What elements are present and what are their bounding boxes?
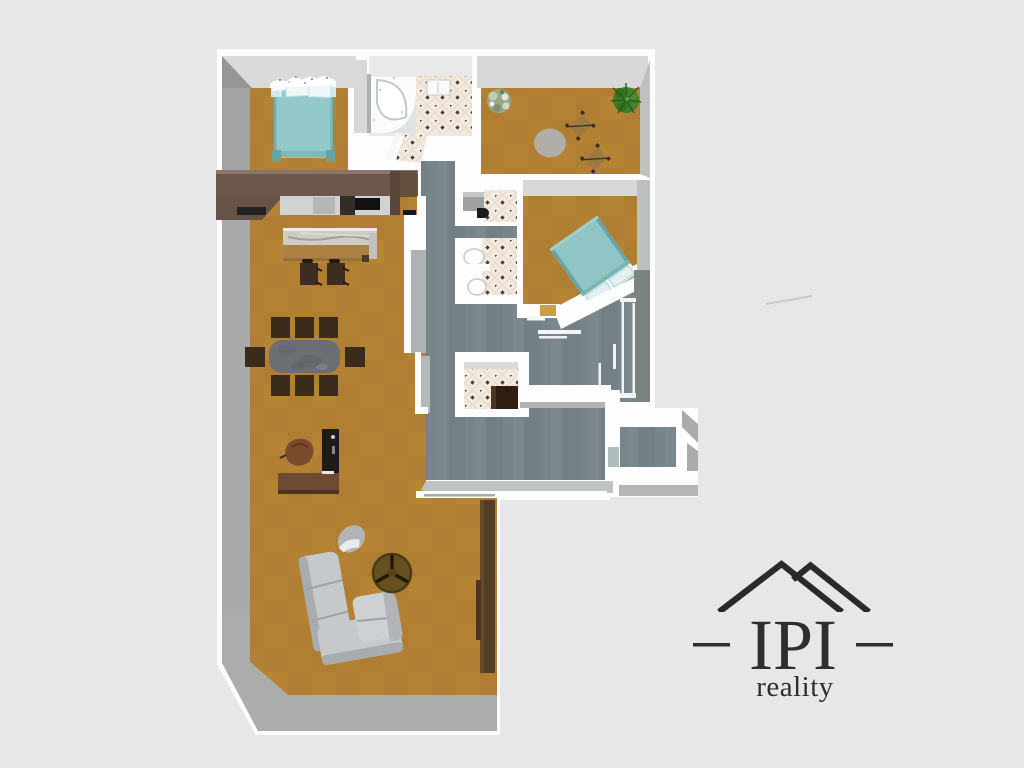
svg-text:reality: reality xyxy=(756,671,834,703)
